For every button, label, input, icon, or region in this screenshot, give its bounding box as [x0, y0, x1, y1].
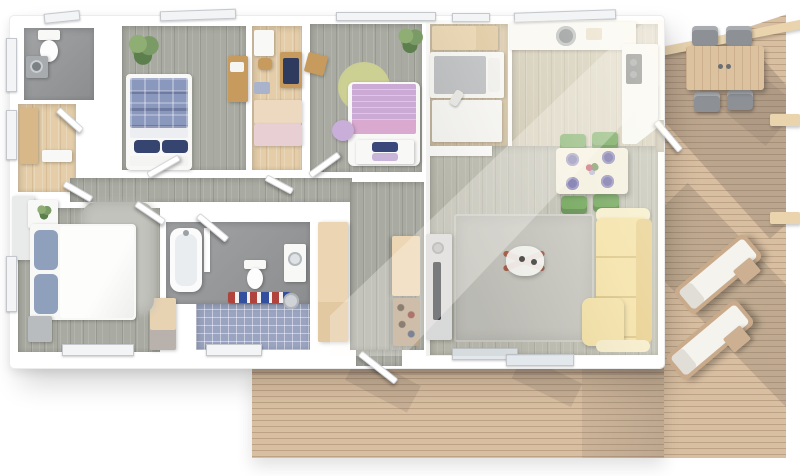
- bathroom-wardrobe: [150, 298, 176, 350]
- bath-faucet: [183, 230, 189, 236]
- table-napkin: [726, 64, 731, 69]
- bedroom3-wardrobe: [432, 26, 498, 50]
- sliding-door-panel: [506, 354, 574, 366]
- office-chair: [258, 58, 272, 70]
- towel-rail: [228, 292, 290, 303]
- bed1-pillow: [134, 140, 160, 153]
- gray-area-rug: [454, 214, 594, 342]
- table-decor: [519, 256, 525, 262]
- table-napkin: [718, 64, 723, 69]
- bed1-pillow: [162, 140, 188, 153]
- plate: [602, 151, 615, 164]
- closet-wardrobe: [20, 108, 38, 164]
- outdoor-dining-table: [686, 46, 764, 90]
- tv: [433, 262, 441, 320]
- bathtub-basin: [175, 234, 197, 286]
- bed2-pink-fold: [352, 120, 416, 134]
- plant-bedroom2: [396, 26, 424, 54]
- pouf-lilac: [332, 120, 354, 141]
- wall-stub: [430, 146, 492, 156]
- pergola-beam: [770, 114, 800, 126]
- flower-bouquet: [585, 162, 599, 176]
- deck-shadow: [582, 366, 664, 458]
- bed3-mattress: [434, 56, 486, 94]
- bench-pillow-lilac: [372, 153, 398, 161]
- sofa-chaise: [582, 298, 624, 346]
- plate: [601, 175, 614, 188]
- hall-wardrobe-right: [392, 236, 420, 296]
- plant-bedroom1: [126, 32, 160, 66]
- master-dresser: [28, 316, 52, 342]
- window-left: [6, 110, 17, 160]
- pergola-beam: [770, 212, 800, 224]
- window-left: [6, 256, 17, 312]
- plate: [566, 153, 579, 166]
- window-bottom: [206, 344, 262, 356]
- plate: [566, 177, 579, 190]
- desk-papers: [230, 62, 244, 72]
- closet-shelf: [42, 150, 72, 162]
- bench-pillow-navy: [372, 142, 398, 152]
- bathroom-toilet-bowl: [247, 268, 263, 289]
- bedroom3-desk: [432, 100, 502, 142]
- dining-chair: [561, 196, 587, 214]
- bed3-pillow: [488, 58, 500, 92]
- kitchen-sink: [556, 26, 576, 46]
- decor-bowl: [432, 242, 444, 254]
- shoe-rack: [393, 298, 419, 346]
- master-pillow: [34, 274, 58, 314]
- bed1-sheet: [130, 128, 188, 138]
- window-bottom: [62, 344, 134, 356]
- office-monitor: [283, 58, 299, 84]
- bed1-plaid-blanket: [130, 78, 188, 128]
- plant-nightstand: [36, 204, 52, 220]
- sofa-armrest: [596, 340, 650, 352]
- office-wardrobe: [254, 124, 302, 146]
- burner: [630, 59, 637, 66]
- cutting-board: [586, 28, 602, 40]
- floor-plan-render: [0, 0, 800, 476]
- laundry-basket: [283, 293, 299, 309]
- deck-bottom: [252, 366, 664, 458]
- window-top: [452, 13, 490, 22]
- office-wardrobe: [254, 100, 302, 124]
- master-duvet: [60, 226, 134, 318]
- outdoor-chair: [692, 26, 718, 46]
- outdoor-chair: [694, 92, 720, 112]
- sofa-back-cushions: [636, 219, 652, 343]
- wall-stub-tub: [204, 228, 210, 272]
- hall-wardrobe-left: [318, 222, 348, 342]
- corridor-floor: [70, 178, 352, 202]
- washbasin: [288, 252, 302, 266]
- outdoor-chair: [726, 26, 752, 46]
- master-pillow: [34, 230, 58, 270]
- door-shadow: [512, 366, 583, 407]
- table-decor: [531, 259, 537, 265]
- burner: [630, 71, 637, 78]
- outdoor-chair: [727, 90, 753, 110]
- window-left: [6, 38, 17, 92]
- office-desk: [254, 30, 274, 56]
- washer-door: [30, 60, 43, 73]
- office-drawer: [254, 82, 270, 94]
- window-top: [336, 12, 436, 21]
- toilet-tank: [38, 30, 60, 40]
- coffee-table-top: [506, 246, 544, 276]
